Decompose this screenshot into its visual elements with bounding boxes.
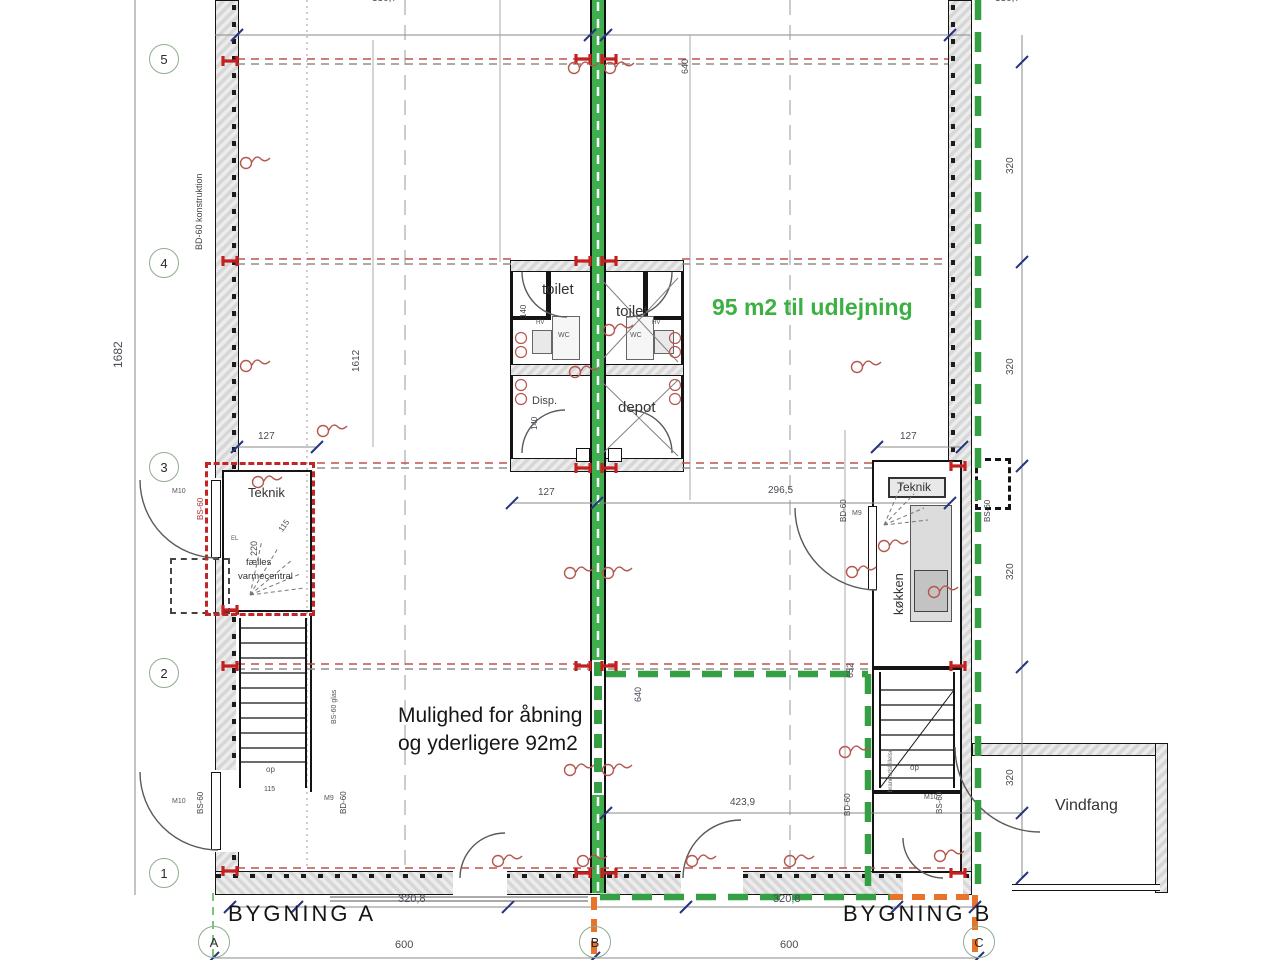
grid-col-b-text: B: [591, 935, 600, 950]
hv-a-label: HV: [536, 320, 544, 326]
dim-127-right: 127: [900, 432, 917, 442]
grid-col-c: C: [963, 926, 995, 958]
dim-1612: 1612: [352, 350, 362, 372]
brandadskillelse-label: brandadskillelse: [888, 749, 894, 792]
el-label: EL: [231, 536, 238, 542]
vindfang-label: Vindfang: [1055, 798, 1118, 814]
dim-127-left: 127: [258, 432, 275, 442]
opening-annotation-line1: Mulighed for åbning: [398, 705, 582, 726]
dim-220: 220: [250, 541, 259, 556]
m10-grid3-label: M10: [172, 488, 186, 495]
grid-row-1: 1: [149, 858, 179, 888]
bd60-koekken-label: BD-60: [840, 499, 848, 522]
grid-row-lines: [237, 59, 948, 868]
dim-140-a: 140: [520, 305, 528, 318]
m10-grid1-label: M10: [172, 798, 186, 805]
grid-row-4: 4: [149, 248, 179, 278]
dim-1682: 1682: [112, 341, 124, 368]
faelles-label-line1: fælles: [246, 558, 271, 568]
dim-640-mid: 640: [634, 687, 643, 702]
dim-640-top: 640: [681, 59, 690, 74]
grid-row-3: 3: [149, 452, 179, 482]
lease-boundary-green: [600, 0, 978, 897]
bd60-adoor-label: BD-60: [340, 791, 348, 814]
dim-320-2: 320: [1006, 358, 1016, 375]
dim-296-5: 296,5: [768, 486, 793, 496]
dim-140-b: 140: [531, 417, 539, 430]
bd60-konstruktion-label: BD-60 konstruktion: [195, 173, 204, 250]
toilet-a-label: toilet: [542, 282, 574, 297]
m9-adoor-label: M9: [324, 795, 334, 802]
bygning-b-label: BYGNING B: [843, 903, 992, 925]
dim-320-8-b: 320,8: [773, 894, 801, 905]
bd60-bstairs-label: BD-60: [844, 793, 852, 816]
dimension-ticks: [207, 29, 1028, 960]
grid-row-4-text: 4: [160, 256, 167, 271]
dim-top-a: 330,7: [372, 0, 397, 4]
m9-koekken-label: M9: [852, 510, 862, 517]
dim-320-3: 320: [1006, 563, 1016, 580]
floor-plan: BYGNING A BYGNING B 95 m2 til udlejning …: [0, 0, 1280, 960]
bs60-grid3-label: BS-60: [197, 498, 205, 520]
dim-600-b: 600: [780, 940, 798, 951]
grid-row-5: 5: [149, 44, 179, 74]
dim-652: 652: [846, 663, 855, 678]
grid-row-5-text: 5: [160, 52, 167, 67]
bs60-box-label: BS-60: [984, 500, 992, 522]
teknik-a-label: Teknik: [248, 486, 285, 499]
op-a-label: op: [266, 766, 275, 774]
column-markers: [223, 54, 965, 878]
opening-annotation-line2: og yderligere 92m2: [398, 733, 578, 754]
fan-dashes: [250, 484, 928, 595]
dim-423-9: 423,9: [730, 798, 755, 808]
dim-top-b: 330,7: [995, 0, 1020, 4]
disp-label: Disp.: [532, 396, 557, 407]
koekken-label: køkken: [892, 573, 905, 615]
dim-600-a: 600: [395, 940, 413, 951]
dim-127-mid: 127: [538, 488, 555, 498]
grid-col-b: B: [579, 926, 611, 958]
depot-label: depot: [618, 400, 656, 415]
grid-row-2: 2: [149, 658, 179, 688]
teknik-b-label: Teknik: [897, 481, 931, 493]
faelles-label-line2: varmecentral: [238, 572, 293, 582]
toilet-b-label: toilet: [616, 304, 648, 319]
dim-320-8-a: 320,8: [398, 894, 426, 905]
bygning-a-label: BYGNING A: [228, 903, 376, 925]
dim-115-stairs: 115: [264, 786, 275, 793]
hv-b-label: HV: [652, 320, 660, 326]
wc-b-label: WC: [630, 332, 642, 339]
op-b-label: op: [910, 764, 919, 772]
linework-overlay: [0, 0, 1280, 960]
grid-row-1-text: 1: [160, 866, 167, 881]
grid-col-a: A: [198, 926, 230, 958]
dim-320-4: 320: [1006, 769, 1016, 786]
dim-320-1: 320: [1006, 157, 1016, 174]
grid-row-2-text: 2: [160, 666, 167, 681]
bs60-grid1-label: BS-60: [197, 792, 205, 814]
stairs-a: [240, 618, 306, 788]
rental-annotation: 95 m2 til udlejning: [712, 296, 913, 319]
grid-col-c-text: C: [974, 935, 983, 950]
wc-a-label: WC: [558, 332, 570, 339]
bs60-glas-label: BS-60 glas: [331, 690, 338, 724]
m10-bdoor-label: M10: [924, 794, 938, 801]
grid-row-3-text: 3: [160, 460, 167, 475]
grid-col-a-text: A: [210, 935, 219, 950]
